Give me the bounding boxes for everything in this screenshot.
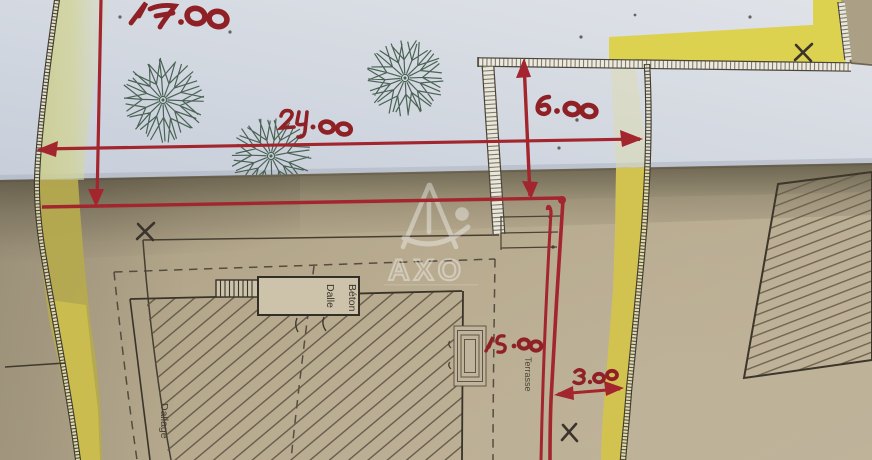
svg-text:Béton: Béton	[346, 284, 358, 312]
svg-text:AXO: AXO	[388, 254, 465, 287]
svg-text:Terrasse: Terrasse	[523, 357, 533, 392]
svg-text:Dalle: Dalle	[324, 284, 336, 308]
svg-text:Dallage: Dallage	[158, 403, 170, 439]
